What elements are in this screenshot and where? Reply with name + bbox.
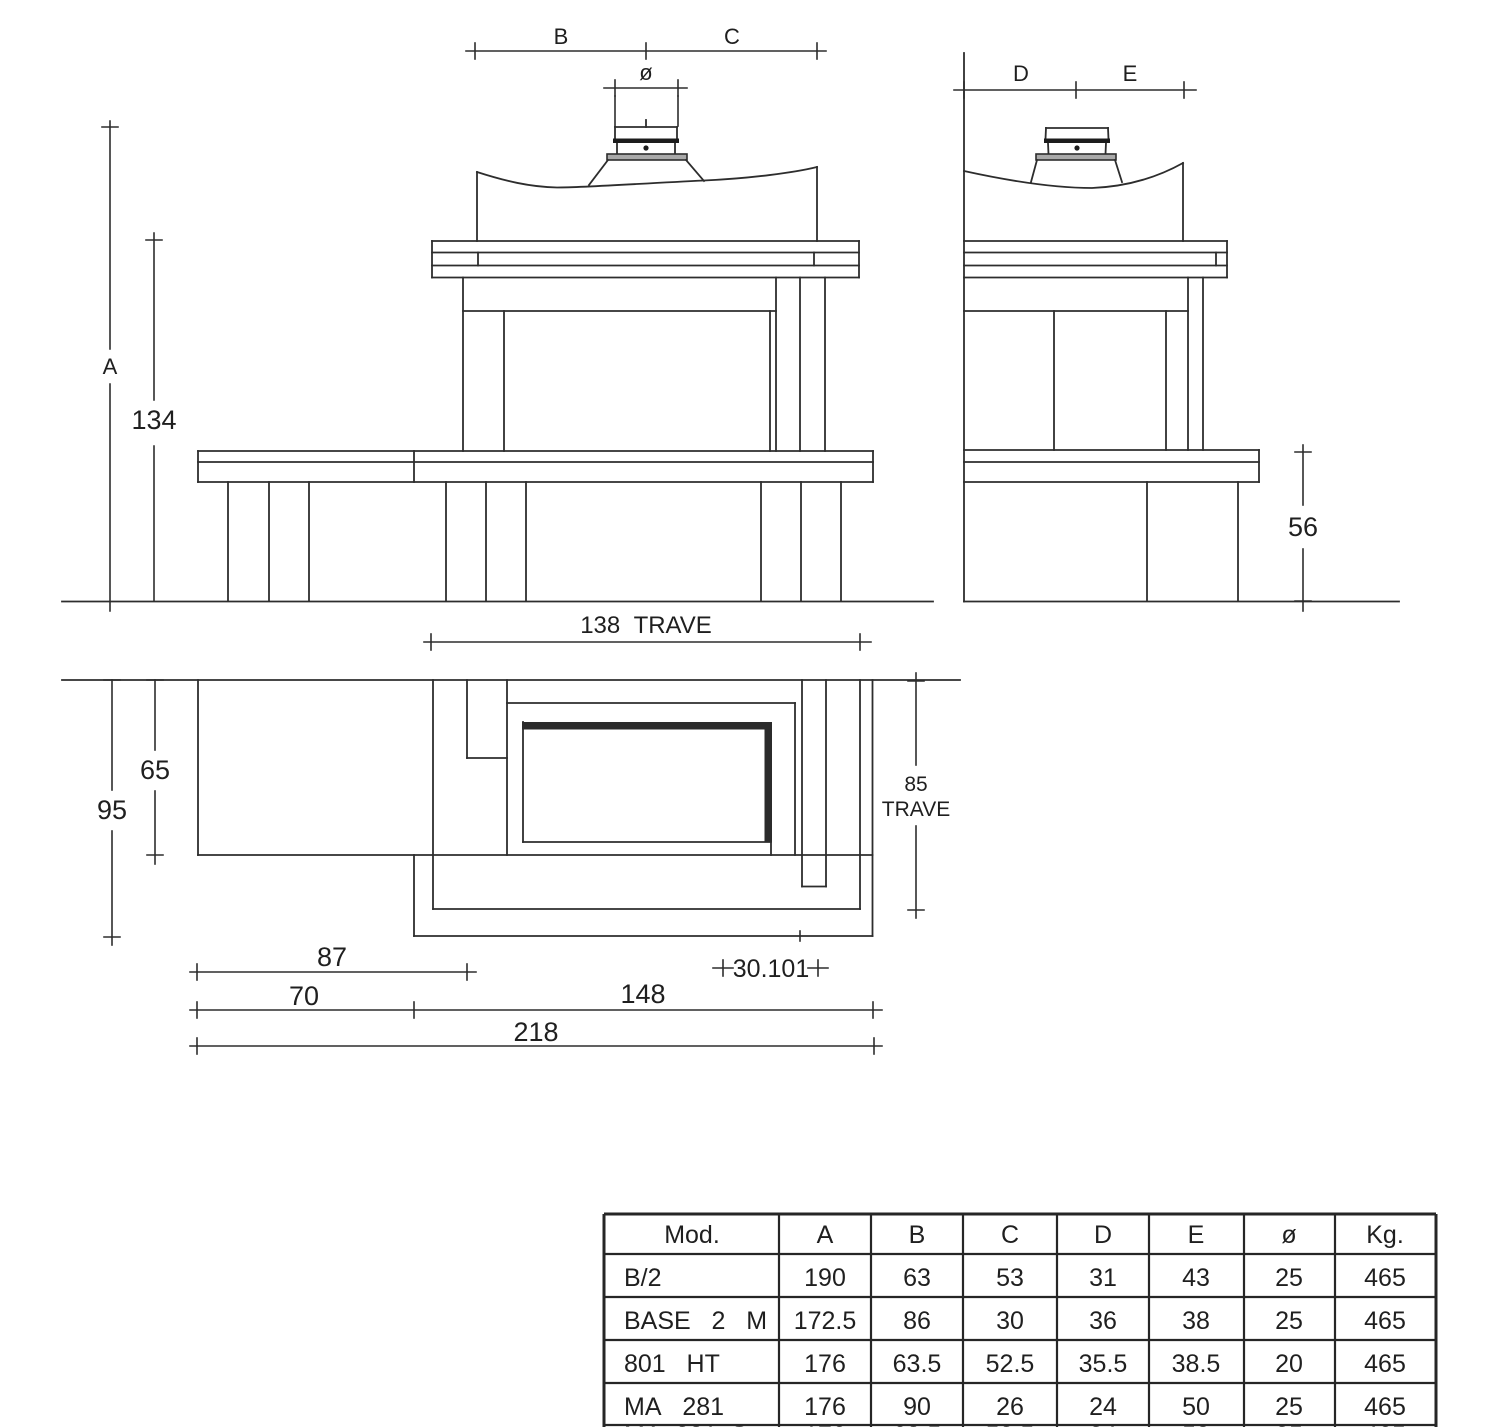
- svg-text:465: 465: [1364, 1422, 1406, 1427]
- svg-text:70: 70: [289, 981, 319, 1011]
- svg-text:176: 176: [804, 1350, 846, 1378]
- svg-text:25: 25: [1275, 1264, 1303, 1292]
- svg-text:86: 86: [903, 1307, 931, 1335]
- svg-text:63: 63: [903, 1264, 931, 1292]
- svg-text:465: 465: [1364, 1264, 1406, 1292]
- svg-text:BASE 2 M: BASE 2 M: [624, 1307, 767, 1335]
- svg-text:Kg.: Kg.: [1366, 1221, 1404, 1249]
- svg-text:31: 31: [1089, 1264, 1117, 1292]
- svg-text:25: 25: [1275, 1307, 1303, 1335]
- svg-text:36: 36: [1089, 1307, 1117, 1335]
- svg-text:D: D: [1013, 61, 1029, 86]
- svg-text:63.5: 63.5: [893, 1350, 942, 1378]
- svg-text:176: 176: [804, 1393, 846, 1421]
- svg-text:190: 190: [804, 1264, 846, 1292]
- svg-text:65: 65: [140, 755, 170, 785]
- svg-text:24: 24: [1089, 1422, 1117, 1427]
- svg-text:63.5: 63.5: [893, 1422, 942, 1427]
- svg-text:MA 281: MA 281: [624, 1393, 724, 1421]
- svg-text:Mod.: Mod.: [664, 1221, 720, 1249]
- svg-text:24: 24: [1089, 1393, 1117, 1421]
- svg-text:20: 20: [1275, 1350, 1303, 1378]
- svg-text:35.5: 35.5: [1079, 1350, 1128, 1378]
- svg-text:52.5: 52.5: [986, 1350, 1035, 1378]
- svg-text:134: 134: [131, 405, 176, 435]
- svg-text:176: 176: [804, 1422, 846, 1427]
- svg-text:C: C: [724, 24, 740, 49]
- svg-text:TRAVE: TRAVE: [882, 798, 950, 821]
- svg-text:50: 50: [1182, 1422, 1210, 1427]
- svg-text:30.101: 30.101: [733, 955, 809, 983]
- svg-text:ø: ø: [1281, 1221, 1296, 1249]
- svg-text:56: 56: [1288, 512, 1318, 542]
- svg-text:E: E: [1123, 61, 1138, 86]
- svg-text:218: 218: [513, 1017, 558, 1047]
- svg-text:E: E: [1188, 1221, 1205, 1249]
- svg-text:52.5: 52.5: [986, 1422, 1035, 1427]
- svg-text:C: C: [1001, 1221, 1019, 1249]
- svg-text:A: A: [817, 1221, 834, 1249]
- svg-text:30: 30: [996, 1307, 1024, 1335]
- svg-text:801 HT: 801 HT: [624, 1350, 720, 1378]
- svg-text:D: D: [1094, 1221, 1112, 1249]
- svg-text:38: 38: [1182, 1307, 1210, 1335]
- svg-text:90: 90: [903, 1393, 931, 1421]
- svg-text:B: B: [909, 1221, 926, 1249]
- svg-text:B: B: [554, 24, 569, 49]
- svg-text:53: 53: [996, 1264, 1024, 1292]
- svg-text:B/2: B/2: [624, 1264, 662, 1292]
- svg-text:26: 26: [996, 1393, 1024, 1421]
- svg-text:465: 465: [1364, 1350, 1406, 1378]
- svg-text:38.5: 38.5: [1172, 1350, 1221, 1378]
- svg-text:A: A: [103, 354, 118, 379]
- svg-text:172.5: 172.5: [794, 1307, 857, 1335]
- svg-text:148: 148: [620, 979, 665, 1009]
- svg-text:95: 95: [97, 795, 127, 825]
- svg-text:465: 465: [1364, 1393, 1406, 1421]
- svg-text:25: 25: [1275, 1422, 1303, 1427]
- svg-text:50: 50: [1182, 1393, 1210, 1421]
- svg-text:87: 87: [317, 942, 347, 972]
- svg-text:138 TRAVE: 138 TRAVE: [580, 612, 712, 639]
- svg-text:43: 43: [1182, 1264, 1210, 1292]
- svg-text:85: 85: [904, 773, 927, 796]
- svg-text:25: 25: [1275, 1393, 1303, 1421]
- svg-text:ø: ø: [639, 60, 652, 85]
- svg-text:465: 465: [1364, 1307, 1406, 1335]
- svg-text:MA 281 S: MA 281 S: [624, 1422, 748, 1427]
